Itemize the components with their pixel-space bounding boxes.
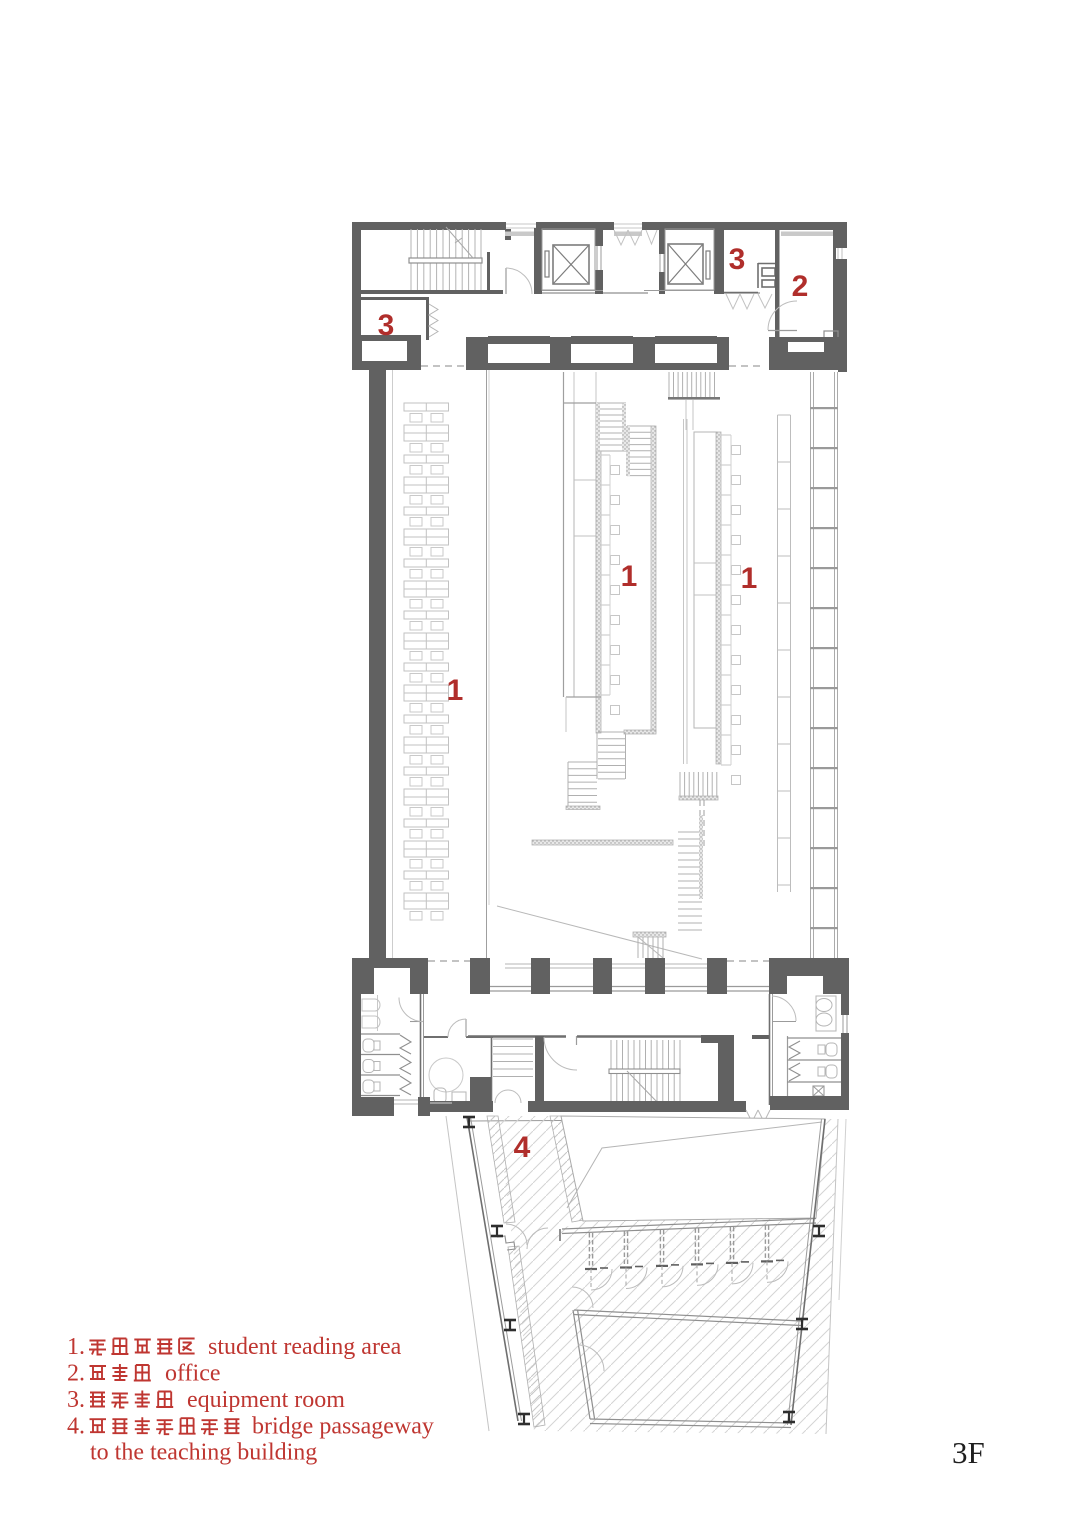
svg-text:equipment room: equipment room xyxy=(187,1387,345,1413)
svg-text:student reading area: student reading area xyxy=(208,1334,402,1360)
svg-text:1: 1 xyxy=(621,560,638,593)
svg-text:to the teaching building: to the teaching building xyxy=(90,1440,317,1466)
svg-text:1.: 1. xyxy=(67,1334,85,1360)
svg-text:office: office xyxy=(165,1361,221,1387)
svg-text:3: 3 xyxy=(729,243,746,276)
svg-text:3.: 3. xyxy=(67,1387,85,1413)
svg-text:1: 1 xyxy=(741,562,758,595)
svg-text:4: 4 xyxy=(514,1131,531,1164)
svg-text:2.: 2. xyxy=(67,1361,85,1387)
svg-text:4.: 4. xyxy=(67,1414,85,1440)
svg-text:bridge passageway: bridge passageway xyxy=(252,1414,434,1440)
svg-text:1: 1 xyxy=(447,674,464,707)
svg-text:2: 2 xyxy=(792,270,809,303)
svg-text:3F: 3F xyxy=(952,1435,985,1470)
svg-text:3: 3 xyxy=(378,309,395,342)
